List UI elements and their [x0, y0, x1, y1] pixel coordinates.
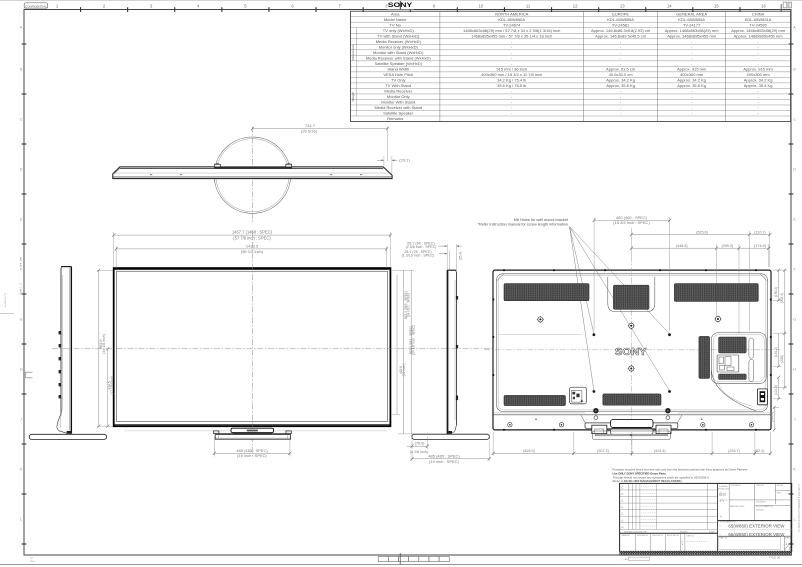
svg-text:H: H	[793, 368, 796, 372]
svg-text:DRAWN BY: DRAWN BY	[621, 534, 631, 537]
svg-text:(160.2): (160.2)	[774, 287, 778, 297]
svg-text:Approx. 146.8x86.3x5.8(2.93) c: Approx. 146.8x86.3x5.8(2.93) cm	[591, 28, 651, 33]
svg-text:DWG NO.: DWG NO.	[756, 485, 765, 487]
svg-text:L: L	[794, 518, 796, 522]
svg-text:L: L	[20, 518, 22, 522]
svg-text:Purchase recycled resins and w: Purchase recycled resins and wire rods o…	[613, 468, 749, 472]
svg-text:Approx. 35.4 Kg: Approx. 35.4 Kg	[744, 83, 773, 88]
svg-text:KDL-65W855A: KDL-65W855A	[607, 17, 634, 22]
svg-text:(181.2): (181.2)	[774, 347, 778, 357]
svg-text:(19 inch): (19 inch)	[402, 364, 406, 377]
svg-text:(34 1/8 inch): (34 1/8 inch)	[102, 334, 106, 354]
svg-text:1468x895x455 mm / 57 7/8 x 35: 1468x895x455 mm / 57 7/8 x 35 1/4 x 18 i…	[471, 33, 552, 38]
svg-text:REVISED: REVISED	[756, 509, 764, 511]
svg-text:Unit : mm: Unit : mm	[19, 257, 22, 267]
svg-text:(35.4): (35.4)	[459, 252, 463, 261]
svg-text:Satellite Speaker (WxHxD): Satellite Speaker (WxHxD)	[374, 61, 422, 66]
svg-text:(Refer to ES-SD-1852 MANAGEMEN: (Refer to ES-SD-1852 MANAGEMENT REGULATI…	[613, 479, 682, 483]
svg-text:16: 16	[761, 4, 766, 9]
svg-text:Approx. 35.6 Kg: Approx. 35.6 Kg	[677, 83, 706, 88]
svg-text:CONFIDENTIAL: CONFIDENTIAL	[25, 4, 47, 8]
svg-text:15: 15	[714, 4, 719, 9]
svg-text:Satellite Speaker: Satellite Speaker	[383, 111, 414, 116]
svg-text:No.1 DOCUMENT No.: No.1 DOCUMENT No.	[756, 506, 773, 508]
svg-text:(424.4): (424.4)	[654, 449, 666, 453]
svg-text:Weight: Weight	[351, 92, 355, 101]
svg-text:(2 5/8 inch : SPEC): (2 5/8 inch : SPEC)	[406, 245, 437, 249]
svg-text:(110.1): (110.1)	[754, 230, 765, 234]
svg-text:Monitor With Stand: Monitor With Stand	[381, 100, 415, 105]
svg-text:Scale 1 : 5: Scale 1 : 5	[19, 283, 22, 295]
svg-text:A-1865-657-B 65(W850) EXTERIO: A-1865-657-B 65(W850) EXTERIOR VIEW 1/2	[797, 484, 800, 532]
svg-text:SONY: SONY	[615, 347, 647, 358]
svg-text:400x300 mm: 400x300 mm	[747, 72, 771, 77]
svg-text:(17 1/8 inch): (17 1/8 inch)	[110, 376, 114, 394]
svg-text:Monitor only (WxHxD): Monitor only (WxHxD)	[379, 44, 419, 49]
svg-text:*Refer instruction manual for: *Refer instruction manual for screw leng…	[478, 222, 568, 226]
svg-text:*: *	[720, 525, 721, 529]
svg-text:1: 1	[785, 542, 787, 546]
svg-text:M6 Holes for wall mount bracke: M6 Holes for wall mount bracket	[514, 218, 569, 222]
svg-text:3rd ANGLE: 3rd ANGLE	[719, 485, 728, 488]
svg-text:Use ONLY SONY SPECIFIED Green: Use ONLY SONY SPECIFIED Green Parts.	[613, 472, 667, 476]
svg-text:TV-24595: TV-24595	[749, 22, 767, 27]
svg-text:APPROVED BY: APPROVED BY	[667, 534, 680, 537]
svg-text:Approx. 1468x863x58(29) mm: Approx. 1468x863x58(29) mm	[731, 28, 785, 33]
svg-text:(19 inch : SPEC): (19 inch : SPEC)	[237, 453, 267, 458]
svg-text:Approx. 35.6 Kg: Approx. 35.6 Kg	[606, 83, 635, 88]
svg-text:J: J	[794, 418, 796, 422]
svg-text:40.0x30.0 cm: 40.0x30.0 cm	[609, 72, 634, 77]
svg-text:(15 3/4 inch : SPEC): (15 3/4 inch : SPEC)	[613, 220, 650, 225]
svg-text:Approx. 91.5 cm: Approx. 91.5 cm	[606, 67, 636, 72]
svg-text:TV With Stand: TV With Stand	[385, 83, 411, 88]
svg-text:1467.7 (1468 : SPEC): 1467.7 (1468 : SPEC)	[232, 230, 273, 235]
svg-text:2: 2	[789, 547, 791, 551]
svg-text:(115.9): (115.9)	[770, 412, 774, 422]
svg-text:(1 3/16 inch : SPEC): (1 3/16 inch : SPEC)	[402, 254, 435, 258]
svg-text:C: C	[20, 118, 23, 122]
svg-text:H: H	[20, 368, 23, 372]
svg-text:744.7: 744.7	[305, 123, 316, 128]
svg-text:(426.5): (426.5)	[523, 449, 535, 453]
svg-text:CHECKED BY: CHECKED BY	[652, 535, 664, 537]
svg-text:Approx. 1468x895x455 mm: Approx. 1468x895x455 mm	[667, 33, 717, 38]
svg-text:P 4011 (B): P 4011 (B)	[769, 556, 780, 559]
svg-text:Approx. 915 mm: Approx. 915 mm	[743, 67, 773, 72]
svg-text:Remarks: Remarks	[387, 116, 403, 121]
svg-text:Media Receiver with Stand (WxH: Media Receiver with Stand (WxHxD)	[366, 55, 432, 60]
svg-text:D: D	[20, 168, 23, 172]
svg-text:(174.9): (174.9)	[754, 244, 766, 248]
svg-text:DESIGNED: DESIGNED	[756, 502, 766, 504]
svg-text:CHINA: CHINA	[752, 11, 765, 16]
svg-text:(307.3): (307.3)	[597, 449, 609, 453]
svg-text:GENERAL AREA: GENERAL AREA	[676, 11, 707, 16]
svg-text:485 (485 : SPEC): 485 (485 : SPEC)	[428, 453, 460, 458]
svg-text:J: J	[20, 418, 22, 422]
svg-text:( A3 ): ( A3 )	[624, 558, 629, 561]
svg-text:TOLERANCE: TOLERANCE	[730, 484, 742, 487]
svg-text:(34 inch : SPEC): (34 inch : SPEC)	[407, 293, 411, 318]
svg-text:SETS: SETS	[777, 492, 782, 494]
svg-text:Media Receiver (WxHxD): Media Receiver (WxHxD)	[376, 39, 422, 44]
svg-text:915 mm / 36 inch: 915 mm / 36 inch	[496, 67, 527, 72]
svg-text:65(W850) EXTERIOR VIEW: 65(W850) EXTERIOR VIEW	[728, 524, 785, 529]
svg-text:G: G	[793, 318, 796, 322]
svg-text:KDL-65W850A: KDL-65W850A	[498, 17, 525, 22]
svg-text:VESA Hole Pitch: VESA Hole Pitch	[383, 72, 413, 77]
svg-text:PROJECTION: PROJECTION	[718, 489, 730, 491]
svg-text:Approx. 1468x863x58(29) mm: Approx. 1468x863x58(29) mm	[665, 28, 719, 33]
svg-text:(82.2): (82.2)	[755, 449, 765, 453]
svg-text:Media Receiver: Media Receiver	[384, 89, 412, 94]
svg-text:(288): (288)	[780, 355, 784, 363]
svg-text:(333.4): (333.4)	[780, 293, 784, 303]
svg-text:(226.7): (226.7)	[728, 449, 740, 453]
svg-text:(57 7/8 inch : SPEC): (57 7/8 inch : SPEC)	[233, 235, 271, 240]
svg-text:1433.5: 1433.5	[246, 243, 259, 248]
svg-text:NORTH AMERICA: NORTH AMERICA	[495, 11, 529, 16]
svg-text:A4: A4	[720, 515, 722, 518]
svg-text:Model Name: Model Name	[384, 17, 407, 22]
svg-text:This part should not contain a: This part should not contain any substan…	[613, 475, 710, 479]
svg-text:TV No: TV No	[390, 22, 402, 27]
svg-text:11: 11	[526, 4, 531, 9]
svg-text:(3 1/8 inch): (3 1/8 inch)	[410, 450, 428, 454]
svg-text:(448.6): (448.6)	[676, 244, 688, 248]
svg-text:Approx. 34.2 Kg: Approx. 34.2 Kg	[606, 78, 635, 83]
svg-text:(56 1/2 inch): (56 1/2 inch)	[241, 249, 264, 254]
svg-text:TV-24581: TV-24581	[612, 22, 630, 27]
svg-text:PART No.: PART No.	[687, 534, 695, 537]
svg-text:(525.6): (525.6)	[696, 230, 708, 234]
svg-text:Approx. 1468x895x455 mm: Approx. 1468x895x455 mm	[734, 33, 784, 38]
svg-text:12: 12	[573, 4, 578, 9]
svg-text:Approx. 34.2 Kg: Approx. 34.2 Kg	[677, 78, 706, 83]
svg-text:400x300 mm / 15 3/4 x 11 7/8 i: 400x300 mm / 15 3/4 x 11 7/8 inch	[481, 72, 542, 77]
svg-text:D: D	[793, 168, 796, 172]
svg-text:13: 13	[620, 4, 625, 9]
svg-text:Dimensions: Dimensions	[351, 44, 355, 60]
svg-text:400x300 mm: 400x300 mm	[680, 72, 704, 77]
svg-text:Area: Area	[391, 11, 400, 16]
svg-text:A-1865-657-B: A-1865-657-B	[4, 293, 7, 307]
svg-text:C: C	[793, 118, 796, 122]
svg-text:DESIGNED BY: DESIGNED BY	[637, 535, 649, 537]
svg-text:MODEL: MODEL	[777, 485, 783, 487]
svg-text:10: 10	[479, 4, 484, 9]
svg-text:MATERIAL FINISH: MATERIAL FINISH	[730, 505, 745, 508]
svg-text:'89.4: '89.4	[30, 561, 35, 563]
svg-text:(29 5/16): (29 5/16)	[301, 129, 318, 134]
svg-text:TV-24674: TV-24674	[503, 22, 521, 27]
svg-text:(29.1): (29.1)	[399, 158, 410, 163]
svg-text:(114.3): (114.3)	[774, 385, 778, 395]
svg-text:Approx. 146.8x89.5x45.5 cm: Approx. 146.8x89.5x45.5 cm	[595, 33, 647, 38]
svg-text:Monitor Only: Monitor Only	[387, 94, 410, 99]
svg-text:G: G	[20, 318, 23, 322]
svg-text:TV-24177: TV-24177	[683, 22, 701, 27]
svg-text:TV only (WxHxD): TV only (WxHxD)	[383, 28, 415, 33]
svg-text:14: 14	[667, 4, 672, 9]
svg-text:(78.9): (78.9)	[415, 441, 425, 445]
svg-text:1468x863x58(29) mm / 57 7/8 x: 1468x863x58(29) mm / 57 7/8 x 34 x 2 5/8…	[463, 28, 560, 33]
svg-text:Approx. 915 mm: Approx. 915 mm	[677, 67, 707, 72]
svg-text:Stand Width: Stand Width	[387, 67, 409, 72]
svg-text:KDL-65W831A: KDL-65W831A	[745, 17, 772, 22]
svg-text:Approx. 34.2 Kg: Approx. 34.2 Kg	[744, 78, 773, 83]
svg-text:TV with Stand (WxHxD): TV with Stand (WxHxD)	[377, 33, 420, 38]
svg-text:35.6 Kg / 78.5 lb: 35.6 Kg / 78.5 lb	[497, 83, 527, 88]
svg-text:EUROPE: EUROPE	[612, 11, 629, 16]
svg-text:Monitor with Stand (WxHxD): Monitor with Stand (WxHxD)	[373, 50, 424, 55]
svg-text:KDL-65W855A: KDL-65W855A	[678, 17, 705, 22]
svg-text:1 : 5: 1 : 5	[719, 500, 724, 503]
svg-text:(309.3): (309.3)	[721, 244, 733, 248]
svg-text:34.2 Kg / 75.4 lb: 34.2 Kg / 75.4 lb	[497, 78, 527, 83]
svg-text:Media Receiver with Stand: Media Receiver with Stand	[374, 105, 422, 110]
svg-text:(34 1/8 inch : SPEC): (34 1/8 inch : SPEC)	[412, 325, 416, 355]
svg-text:TV Only: TV Only	[391, 78, 405, 83]
svg-text:SHEET: SHEET	[785, 538, 791, 540]
svg-text:(19 inch : SPEC): (19 inch : SPEC)	[429, 459, 459, 464]
